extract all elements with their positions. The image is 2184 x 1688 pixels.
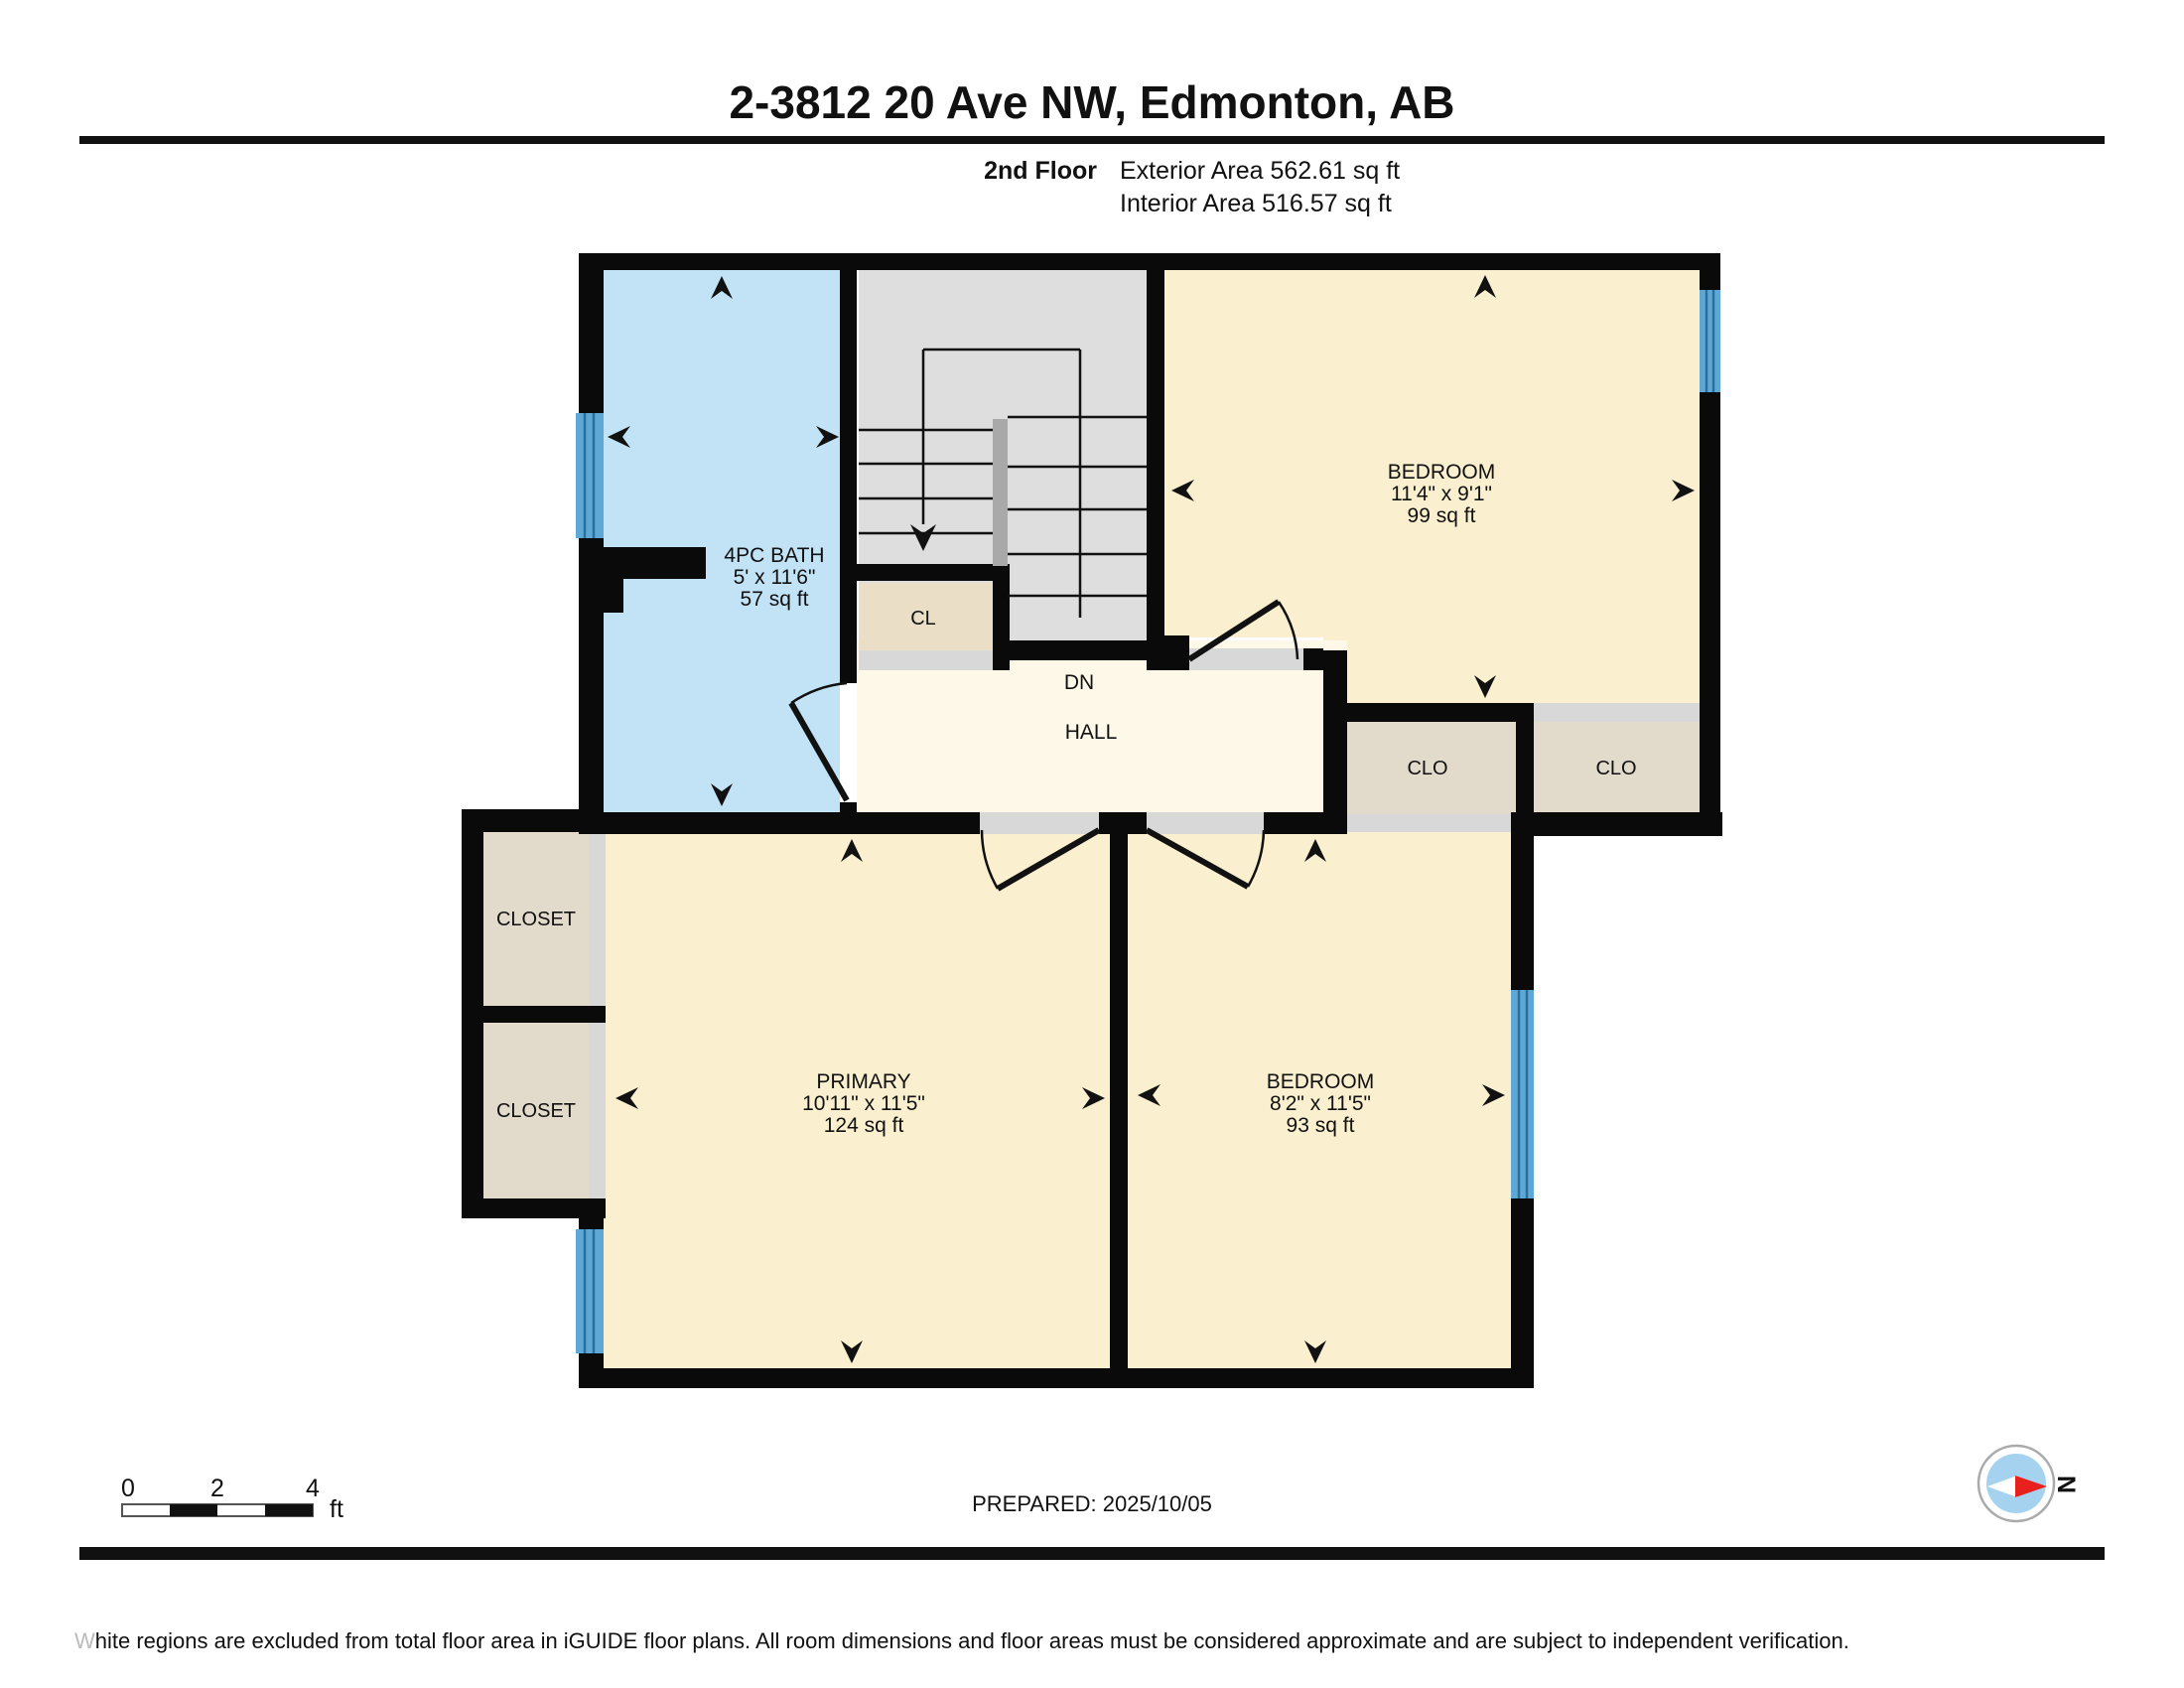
interior-area-label: Interior Area 516.57 sq ft [1120,190,1392,217]
footer-disclaimer-lead: W [74,1628,95,1653]
page-title: 2-3812 20 Ave NW, Edmonton, AB [729,76,1454,128]
hall-name: HALL [1065,721,1118,744]
clo-left-sill [1345,814,1511,832]
bedroom-top-name: BEDROOM [1388,461,1496,484]
rooms-lower [601,832,1511,1368]
bath-name: 4PC BATH [724,544,824,567]
footer-divider [79,1547,2105,1560]
primary-name: PRIMARY [816,1070,910,1093]
scale-unit-label: ft [330,1495,343,1523]
bedroom-top-window [1700,290,1720,392]
clo-right-sill [1534,703,1700,722]
footer-disclaimer-rest: hite regions are excluded from total flo… [95,1628,1849,1653]
bath-area: 57 sq ft [741,588,809,611]
bedroom-bottom-name: BEDROOM [1267,1070,1375,1093]
exterior-area-label: Exterior Area 562.61 sq ft [1120,157,1400,185]
floor-plan-page: 2-3812 20 Ave NW, Edmonton, AB 2nd Floor… [0,0,2184,1688]
bedroom-bottom-window [1511,990,1534,1198]
floor-label: 2nd Floor [984,157,1097,185]
closet-top-open-side [589,832,606,1006]
primary-area: 124 sq ft [824,1114,904,1137]
scale-tick-2: 2 [210,1475,224,1502]
compass-icon: N [1979,1446,2080,1521]
header-divider [79,136,2105,144]
footer-disclaimer: White regions are excluded from total fl… [74,1628,1849,1653]
bedroom-top-dims: 11'4" x 9'1" [1391,483,1492,505]
room-bedroom-top-lower [1323,635,1700,705]
closet-top-label: CLOSET [496,909,576,930]
closet-bottom-label: CLOSET [496,1100,576,1122]
bedroom-bottom-door-sill [1147,812,1264,834]
primary-window [576,1229,604,1353]
room-bedroom-top [1161,270,1700,637]
prepared-date: PREPARED: 2025/10/05 [972,1491,1212,1516]
scale-tick-4: 4 [306,1475,320,1502]
stair-rail [993,419,1008,566]
clo-left-label: CLO [1407,758,1447,779]
cl-label: CL [910,608,936,630]
cl-sill [859,650,993,670]
bath-dims: 5' x 11'6" [734,566,816,589]
stairs-dn-label: DN [1064,671,1094,694]
compass-north-label: N [2052,1476,2080,1493]
bedroom-bottom-dims: 8'2" x 11'5" [1270,1092,1371,1115]
primary-door-sill [980,812,1099,834]
clo-right-label: CLO [1595,758,1636,779]
scale-tick-0: 0 [121,1475,135,1502]
floor-plan-canvas: 2-3812 20 Ave NW, Edmonton, AB 2nd Floor… [0,0,2184,1688]
closet-bottom-open-side [589,1023,606,1198]
bedroom-bottom-area: 93 sq ft [1287,1114,1355,1137]
primary-dims: 10'11" x 11'5" [802,1092,925,1115]
bedroom-top-area: 99 sq ft [1408,504,1476,527]
bath-window [576,413,604,538]
scale-bar: 0 2 4 ft [121,1475,343,1523]
